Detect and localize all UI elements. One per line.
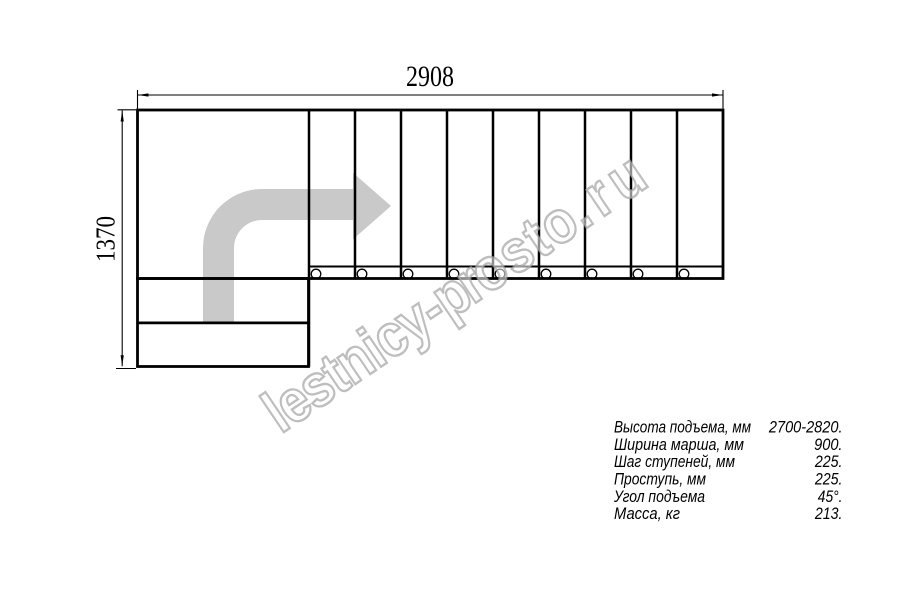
svg-text:2908: 2908 — [406, 60, 454, 93]
svg-text:Угол подъема: Угол подъема — [613, 488, 705, 506]
svg-text:2700-2820.: 2700-2820. — [768, 419, 842, 437]
svg-text:225.: 225. — [814, 453, 842, 471]
svg-text:900.: 900. — [814, 436, 842, 454]
svg-text:Высота подъема, мм: Высота подъема, мм — [614, 419, 751, 437]
svg-text:1370: 1370 — [91, 216, 121, 262]
svg-text:Шаг ступеней, мм: Шаг ступеней, мм — [614, 453, 735, 471]
svg-text:Ширина марша, мм: Ширина марша, мм — [614, 436, 744, 454]
svg-text:225.: 225. — [814, 471, 842, 489]
svg-text:Проступь, мм: Проступь, мм — [614, 471, 706, 489]
svg-text:Масса, кг: Масса, кг — [614, 505, 680, 523]
svg-text:213.: 213. — [814, 505, 842, 523]
svg-text:45°.: 45°. — [818, 488, 843, 506]
